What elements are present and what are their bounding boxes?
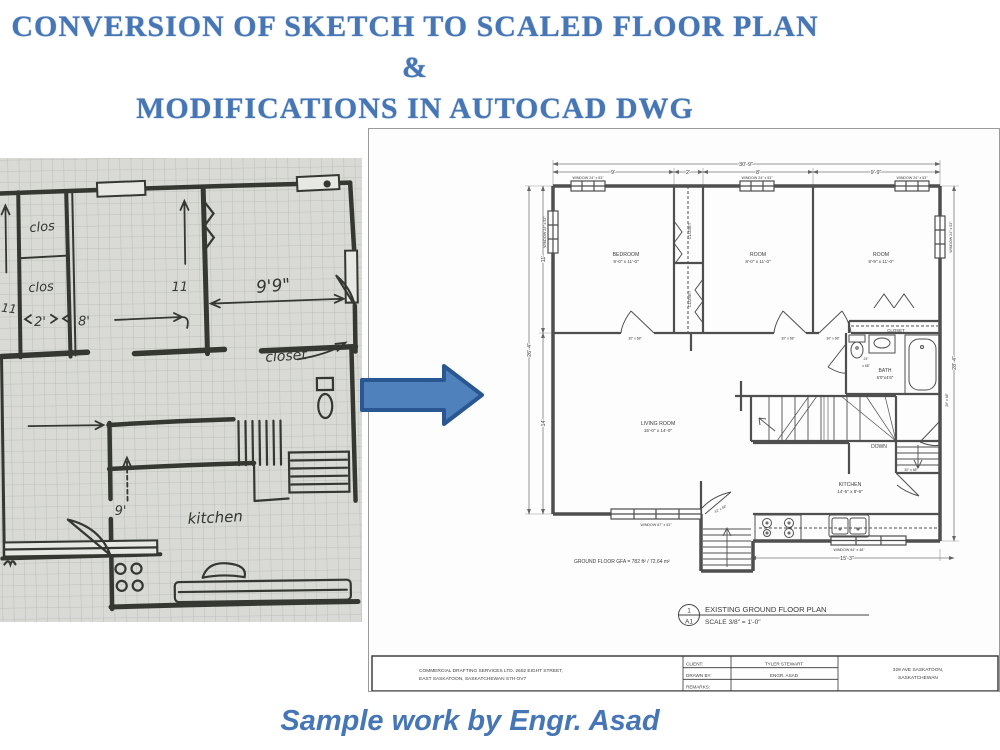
page-title: CONVERSION OF SKETCH TO SCALED FLOOR PLA… [0, 6, 830, 129]
dim-seg-1: 9' [611, 170, 615, 176]
bathroom-sink [869, 335, 895, 353]
window-label-bottom-living: WINDOW 87" x 53" [640, 523, 672, 527]
room-room2-size: 8'-0" x 11'-0" [745, 259, 771, 264]
door-label-room2: 30" x 68" [781, 337, 795, 341]
sketch-label-9ft: 9' [115, 504, 127, 519]
bathtub [905, 335, 940, 394]
client-label: CLIENT: [686, 662, 703, 667]
sketch-label-9-9: 9'9" [255, 275, 291, 298]
door-label-side: 26" x 68" [945, 392, 949, 406]
window-label-right: WINDOW 24" x 53" [949, 221, 953, 253]
room-room3-size: 9'-9" x 11'-0" [868, 259, 894, 264]
drawn-by-label: DRAWN BY: [686, 673, 712, 678]
dim-overall-width: 30'-9" [739, 162, 753, 168]
cad-window-labels: WINDOW 24" x 53" WINDOW 24" x 53" WINDOW… [543, 176, 953, 552]
sketch-label-8ft: 8' [78, 314, 90, 329]
sketch-label-2ft: 2' [34, 315, 46, 330]
cad-doors [621, 221, 940, 514]
dim-seg-2: 2' [686, 170, 690, 176]
title-block: COMMERCIAL DRAFTING SERVICES LTD. 2602 E… [372, 656, 998, 691]
window-top-3 [895, 181, 929, 191]
address-line-2: SASKATCHEWAN [898, 675, 938, 681]
window-bottom-living [611, 509, 701, 519]
sketch-label-11a: 11 [171, 280, 188, 295]
door-label-kitchen: 30" x 68" [904, 468, 918, 472]
right-arrow-icon [356, 360, 488, 430]
kitchen-sink [829, 515, 869, 537]
remarks-label: REMARKS: [686, 685, 710, 690]
callout-sheet: A1 [685, 619, 693, 626]
room-bedroom-name: BEDROOM [613, 252, 640, 258]
closet-hall-upper-label: CLOSET [687, 222, 692, 239]
cad-dimension-lines [529, 164, 954, 558]
dim-bottom-kitchen: 15'-3" [840, 556, 854, 562]
room-kitchen-name: KITCHEN [839, 482, 862, 488]
room-kitchen-size: 14'-5" x 8'-6" [837, 489, 863, 494]
plan-scale: SCALE 3/8" = 1'-0" [705, 619, 761, 626]
drawn-by-value: ENGR. ASAD [770, 673, 799, 678]
cad-room-labels: BEDROOM 9'-0" x 11'-0" ROOM 8'-0" x 11'-… [613, 222, 906, 494]
closet-hall-lower-label: CLOSET [687, 290, 692, 307]
cad-extension-lines [525, 160, 959, 571]
callout-number: 1 [687, 608, 691, 615]
cad-dimension-labels: 30'-9" 9' 2' 8' 9'-9" 26'-4" 11' 14' 28'… [527, 162, 958, 562]
window-left [548, 211, 558, 253]
slide: CONVERSION OF SKETCH TO SCALED FLOOR PLA… [0, 0, 1000, 750]
door-label-bath-2: x 68" [862, 364, 870, 368]
dim-seg-4: 9'-9" [871, 170, 882, 176]
conversion-arrow [356, 360, 488, 430]
plan-callout: 1 A1 EXISTING GROUND FLOOR PLAN SCALE 3/… [679, 605, 870, 627]
sketch-label-closet-lower: clos [28, 279, 55, 296]
cad-fixtures [755, 335, 940, 540]
dim-left-upper: 11' [541, 256, 547, 263]
room-living-name: LIVING ROOM [641, 421, 676, 427]
toilet [849, 335, 865, 358]
client-value: TYLER STEWART [765, 662, 803, 667]
sketch-label-11b: 11 [1, 301, 18, 317]
window-label-top-1: WINDOW 24" x 53" [572, 176, 604, 180]
door-label-room3: 30" x 68" [826, 337, 840, 341]
window-label-top-3: WINDOW 24" x 53" [896, 176, 928, 180]
window-label-top-2: WINDOW 24" x 53" [741, 176, 773, 180]
room-bath-size: 6'0"x4'6" [877, 375, 894, 380]
window-label-bottom-kitchen: WINDOW 64" x 48" [833, 548, 865, 552]
title-line-2: MODIFICATIONS IN AUTOCAD DWG [0, 88, 830, 129]
room-room2-name: ROOM [750, 252, 766, 258]
dim-left-total: 26'-4" [527, 343, 533, 357]
window-right [935, 216, 945, 258]
gfa-note: GROUND FLOOR GFA = 782 ft² / 72.64 m² [574, 559, 670, 565]
cad-windows [548, 181, 945, 545]
title-line-1: CONVERSION OF SKETCH TO SCALED FLOOR PLA… [0, 6, 830, 88]
dim-left-lower: 14' [541, 419, 547, 426]
sketch-ink: clos clos 11 11 9'9" 2' 8' closet kitche… [0, 158, 362, 622]
door-label-bath-1: 24" [864, 357, 870, 361]
sketch-drawing: clos clos 11 11 9'9" 2' 8' closet kitche… [0, 158, 362, 622]
window-top-1 [571, 181, 605, 191]
room-bedroom-size: 9'-0" x 11'-0" [613, 259, 639, 264]
plan-title: EXISTING GROUND FLOOR PLAN [705, 605, 827, 614]
dim-right-total: 28'-4" [952, 356, 958, 370]
company-line-2: EAST SASKATOON, SASKATCHEWAN S7H OV7 [419, 676, 526, 682]
hand-sketch-photo: clos clos 11 11 9'9" 2' 8' closet kitche… [0, 158, 362, 622]
company-line-1: COMMERCIAL DRAFTING SERVICES LTD. 2602 E… [419, 668, 563, 674]
address-line-1: 329 AVE SASKATOON, [893, 667, 943, 673]
door-label-bedroom: 30" x 68" [628, 337, 642, 341]
stairs-down-label: DOWN [871, 444, 887, 450]
room-bath-name: BATH [879, 368, 892, 374]
room-room3-name: ROOM [873, 252, 889, 258]
window-label-left: WINDOW 24" x 53" [543, 216, 547, 248]
sketch-label-closet-right: closet [265, 347, 308, 366]
closet-bath-label: CLOSET [887, 328, 905, 333]
room-living-size: 15'-0" x 14'-0" [644, 428, 673, 433]
window-top-2 [740, 181, 774, 191]
caption-text: Sample work by Engr. Asad [0, 705, 940, 738]
sketch-label-kitchen: kitchen [187, 507, 243, 528]
sketch-label-closet-upper: clos [29, 219, 56, 236]
